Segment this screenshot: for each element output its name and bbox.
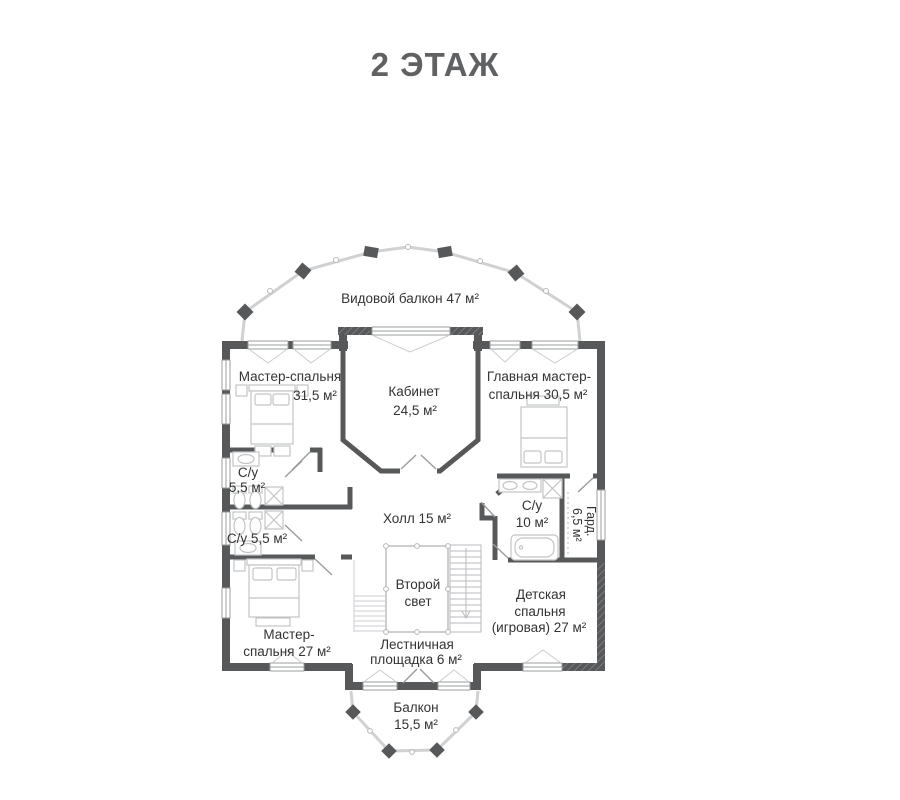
label-master-top-2: 31,5 м²	[293, 388, 337, 403]
label-hall: Холл 15 м²	[383, 511, 452, 526]
label-wardrobe-2: 6,5 м²	[570, 508, 584, 542]
label-stair-landing-2: площадка 6 м²	[370, 652, 462, 667]
label-main-master-1: Главная мастер-	[487, 369, 591, 384]
door-balcony-right	[420, 669, 434, 683]
door-bathroom-lower	[285, 525, 302, 541]
window	[438, 682, 470, 690]
label-main-master-2: спальня 30,5 м²	[489, 387, 588, 402]
label-view-balcony: Видовой балкон 47 м²	[341, 291, 479, 306]
door-study-left	[401, 455, 416, 469]
label-second-light-1: Второй	[396, 577, 441, 592]
floor-plan-page: 2 ЭТАЖ	[0, 0, 900, 800]
label-bathroom-main-2: 10 м²	[516, 515, 549, 530]
label-balcony-1: Балкон	[393, 700, 438, 715]
staircase	[450, 545, 481, 632]
window	[372, 327, 450, 335]
door-master-bottom	[315, 559, 332, 575]
label-stair-landing-1: Лестничная	[380, 637, 454, 652]
label-children-3: (игровая) 27 м²	[492, 620, 587, 635]
label-study-1: Кабинет	[388, 384, 439, 399]
window	[222, 588, 230, 618]
label-second-light-2: свет	[404, 594, 431, 609]
stair-lower-flight	[354, 560, 386, 632]
label-master-top-1: Мастер-спальня	[239, 369, 341, 384]
window	[248, 341, 288, 349]
bed-main-master	[521, 396, 567, 467]
page-title: 2 ЭТАЖ	[0, 46, 885, 84]
bed-master-bottom	[234, 559, 313, 626]
window	[222, 394, 230, 424]
label-master-bottom-1: Мастер-	[263, 627, 314, 642]
window	[363, 682, 397, 690]
label-bathroom-upper-2: 5,5 м²	[229, 480, 266, 495]
door-balcony-left	[403, 669, 417, 683]
door-main-master	[578, 478, 593, 492]
label-bathroom-upper-1: С/у	[238, 465, 259, 480]
label-master-bottom-2: спальня 27 м²	[243, 644, 331, 659]
label-study-2: 24,5 м²	[393, 403, 437, 418]
door-study-right	[421, 455, 436, 469]
window	[293, 341, 331, 349]
window	[222, 360, 230, 390]
window	[523, 663, 562, 671]
floor-plan: Видовой балкон 47 м² Мастер-спальня 31,5…	[0, 0, 900, 800]
label-bathroom-main-1: С/у	[522, 498, 543, 513]
label-children-2: спальня	[514, 604, 565, 619]
label-wardrobe-1: Гард.	[584, 506, 598, 536]
window	[532, 341, 578, 349]
label-bathroom-lower: С/у 5,5 м²	[227, 531, 288, 546]
door-bathroom-upper	[285, 461, 302, 477]
window	[270, 663, 304, 671]
label-children-1: Детская	[516, 587, 566, 602]
window	[490, 341, 520, 349]
label-balcony-2: 15,5 м²	[394, 717, 438, 732]
